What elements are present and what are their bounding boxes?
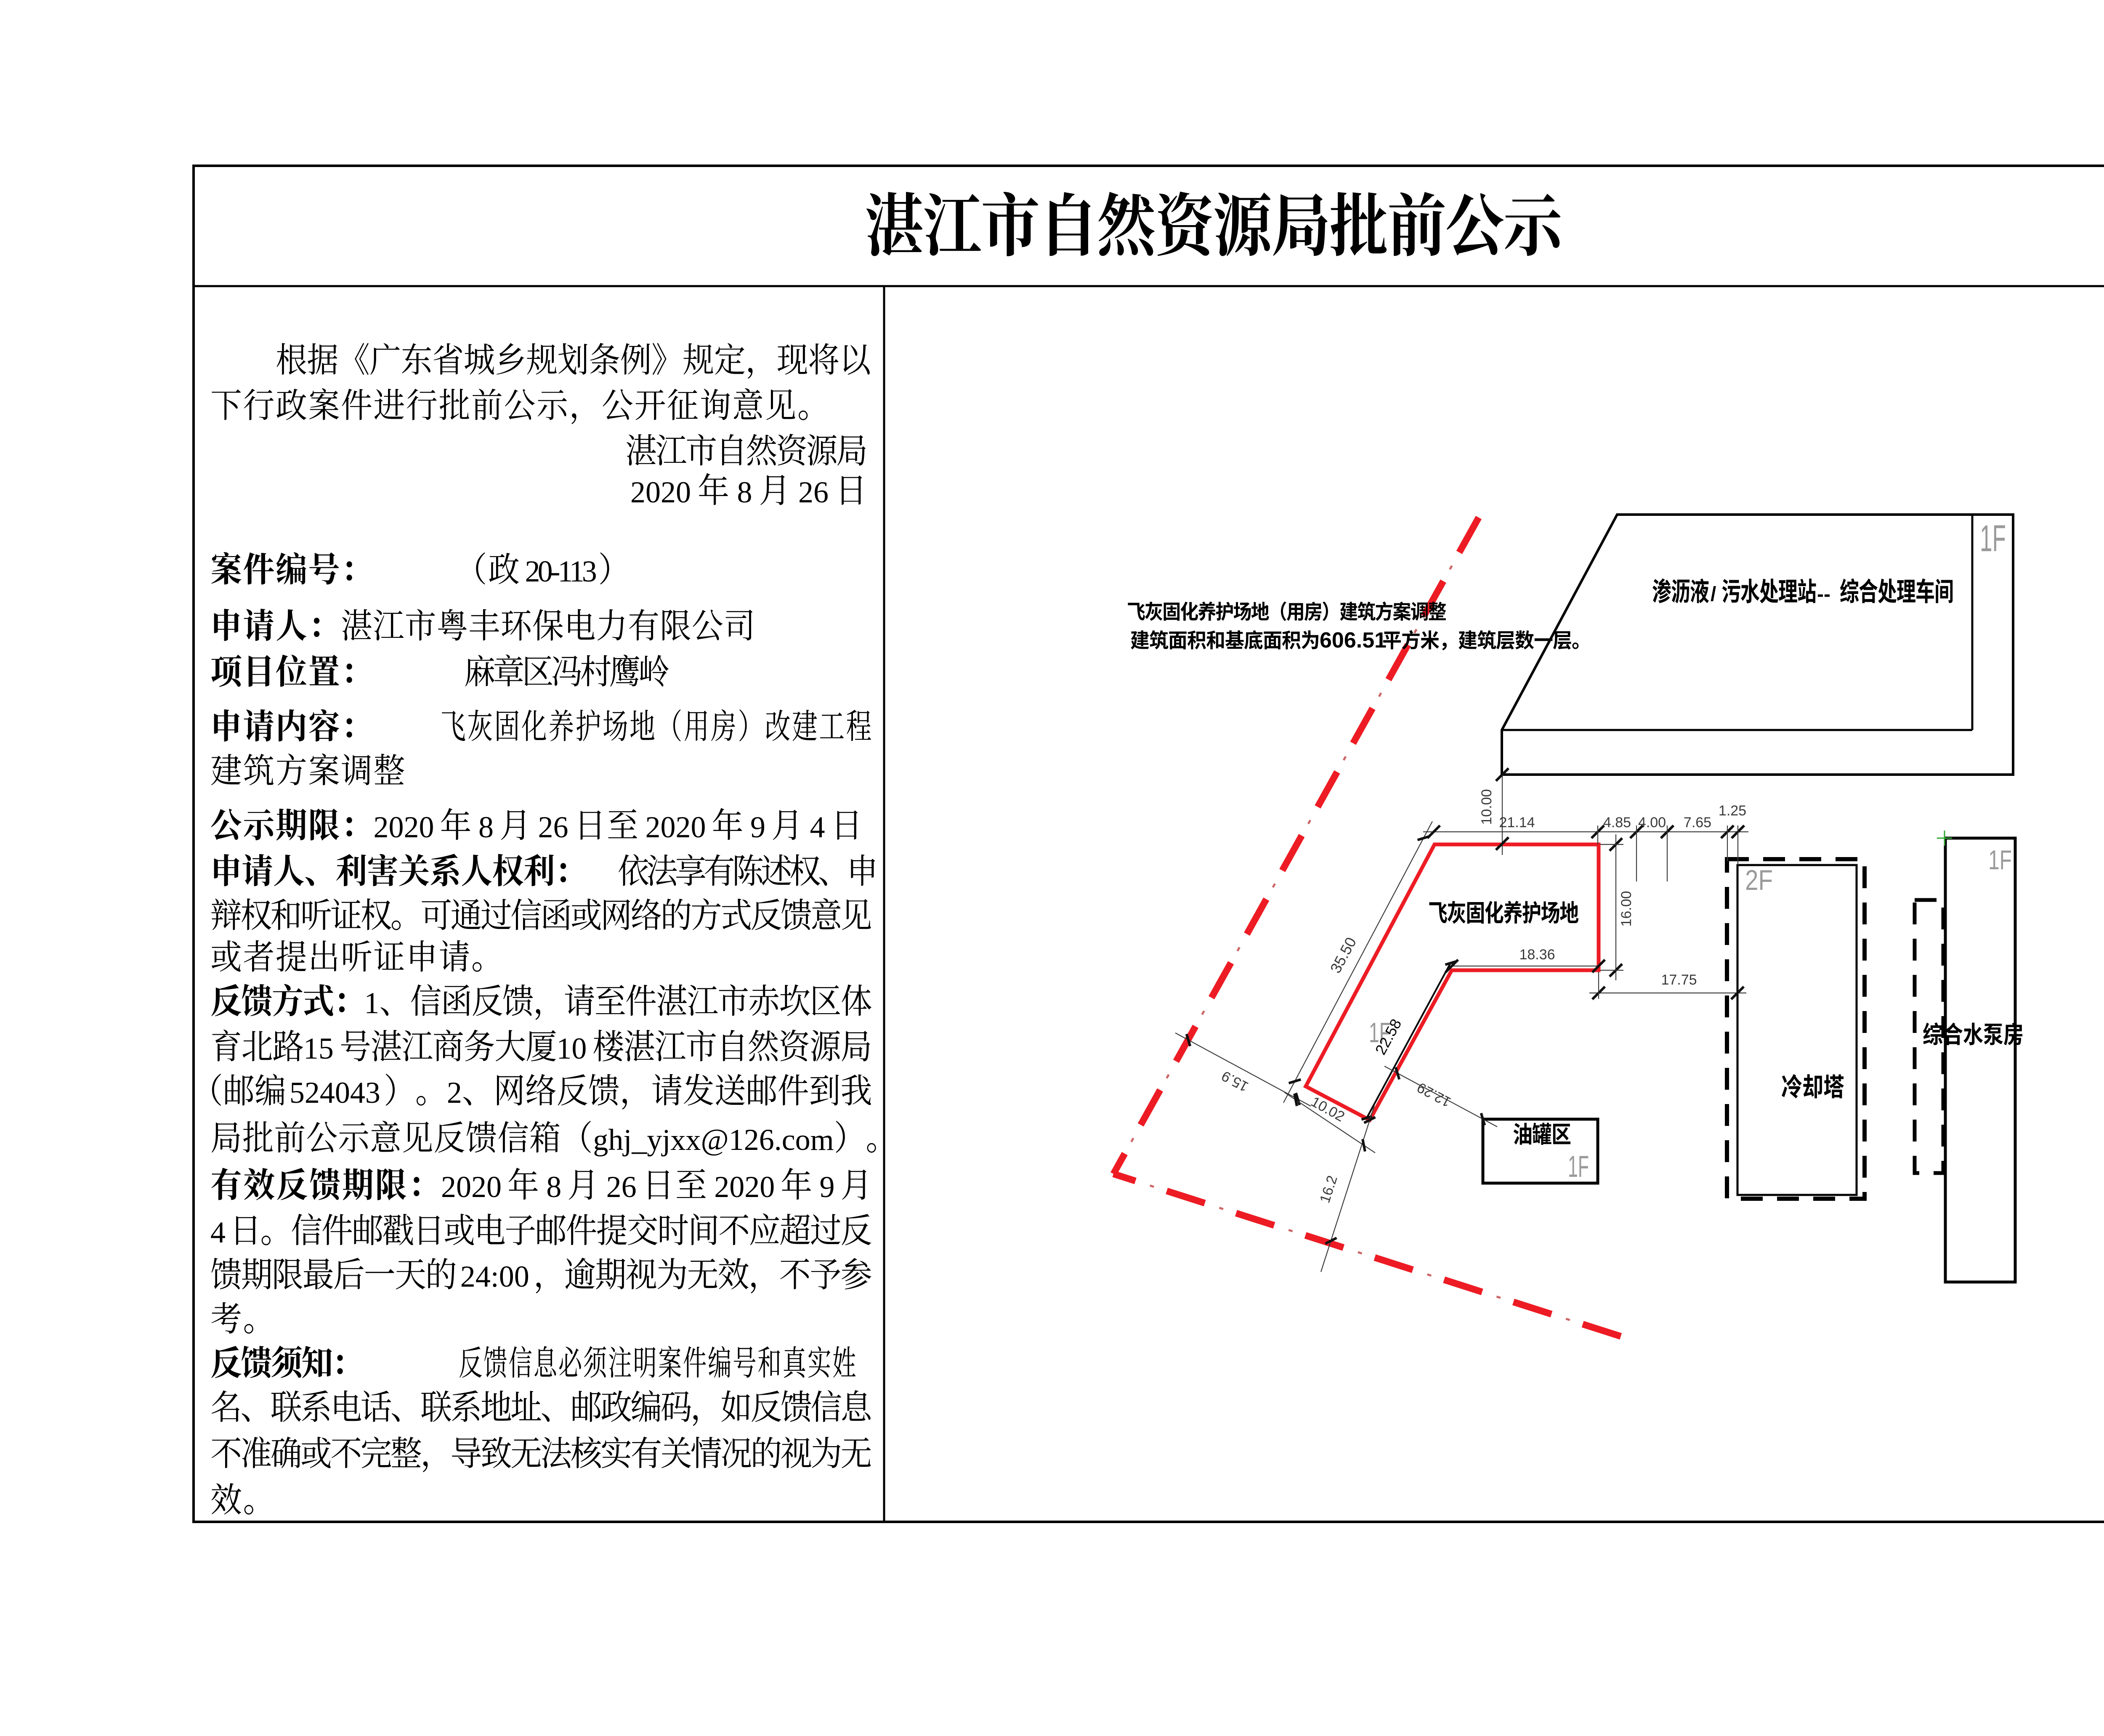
svg-text:/: / [1711, 583, 1716, 605]
svg-text:2020: 2020 [714, 1170, 775, 1204]
svg-text:10: 10 [556, 1032, 587, 1065]
svg-text:4.85: 4.85 [1603, 815, 1631, 831]
svg-text:2F: 2F [1745, 864, 1773, 896]
svg-text:15: 15 [303, 1032, 334, 1065]
svg-text:18.36: 18.36 [1519, 947, 1555, 963]
svg-text:26: 26 [538, 810, 569, 844]
svg-text:16.00: 16.00 [1618, 891, 1634, 926]
svg-text:24:00: 24:00 [460, 1260, 529, 1293]
svg-text:10.00: 10.00 [1479, 789, 1495, 825]
svg-text:26: 26 [606, 1170, 637, 1204]
svg-text:2020: 2020 [630, 475, 691, 509]
svg-text:4.00: 4.00 [1638, 815, 1666, 831]
svg-text:1: 1 [364, 986, 379, 1020]
svg-text:8: 8 [546, 1170, 561, 1204]
svg-text:8: 8 [478, 810, 494, 844]
svg-text:2: 2 [447, 1076, 462, 1110]
svg-text:606.51: 606.51 [1320, 628, 1387, 653]
svg-text:1.25: 1.25 [1719, 803, 1746, 819]
svg-text:2020: 2020 [441, 1170, 502, 1204]
svg-text:2020: 2020 [374, 810, 434, 844]
svg-text:1F: 1F [1980, 517, 2006, 559]
svg-text:4: 4 [210, 1216, 226, 1249]
svg-text:35.50: 35.50 [1327, 934, 1360, 976]
svg-text:4: 4 [810, 810, 825, 844]
svg-text:16.2: 16.2 [1317, 1173, 1341, 1205]
svg-text:1F: 1F [1988, 844, 2012, 875]
svg-text:9: 9 [820, 1170, 835, 1204]
svg-text:2020: 2020 [646, 810, 706, 844]
svg-text:ghj_yjxx@126.com: ghj_yjxx@126.com [593, 1123, 834, 1157]
svg-text:--: -- [1817, 583, 1830, 605]
svg-text:26: 26 [798, 475, 829, 509]
svg-text:12.29: 12.29 [1414, 1079, 1453, 1110]
svg-text:21.14: 21.14 [1499, 815, 1535, 831]
svg-text:17.75: 17.75 [1661, 972, 1697, 988]
svg-text:8: 8 [737, 475, 752, 509]
svg-text:1F: 1F [1568, 1150, 1589, 1184]
svg-text:524043: 524043 [290, 1076, 380, 1110]
svg-text:20-113: 20-113 [525, 555, 596, 588]
svg-text:9: 9 [750, 810, 765, 844]
svg-text:7.65: 7.65 [1684, 815, 1711, 831]
